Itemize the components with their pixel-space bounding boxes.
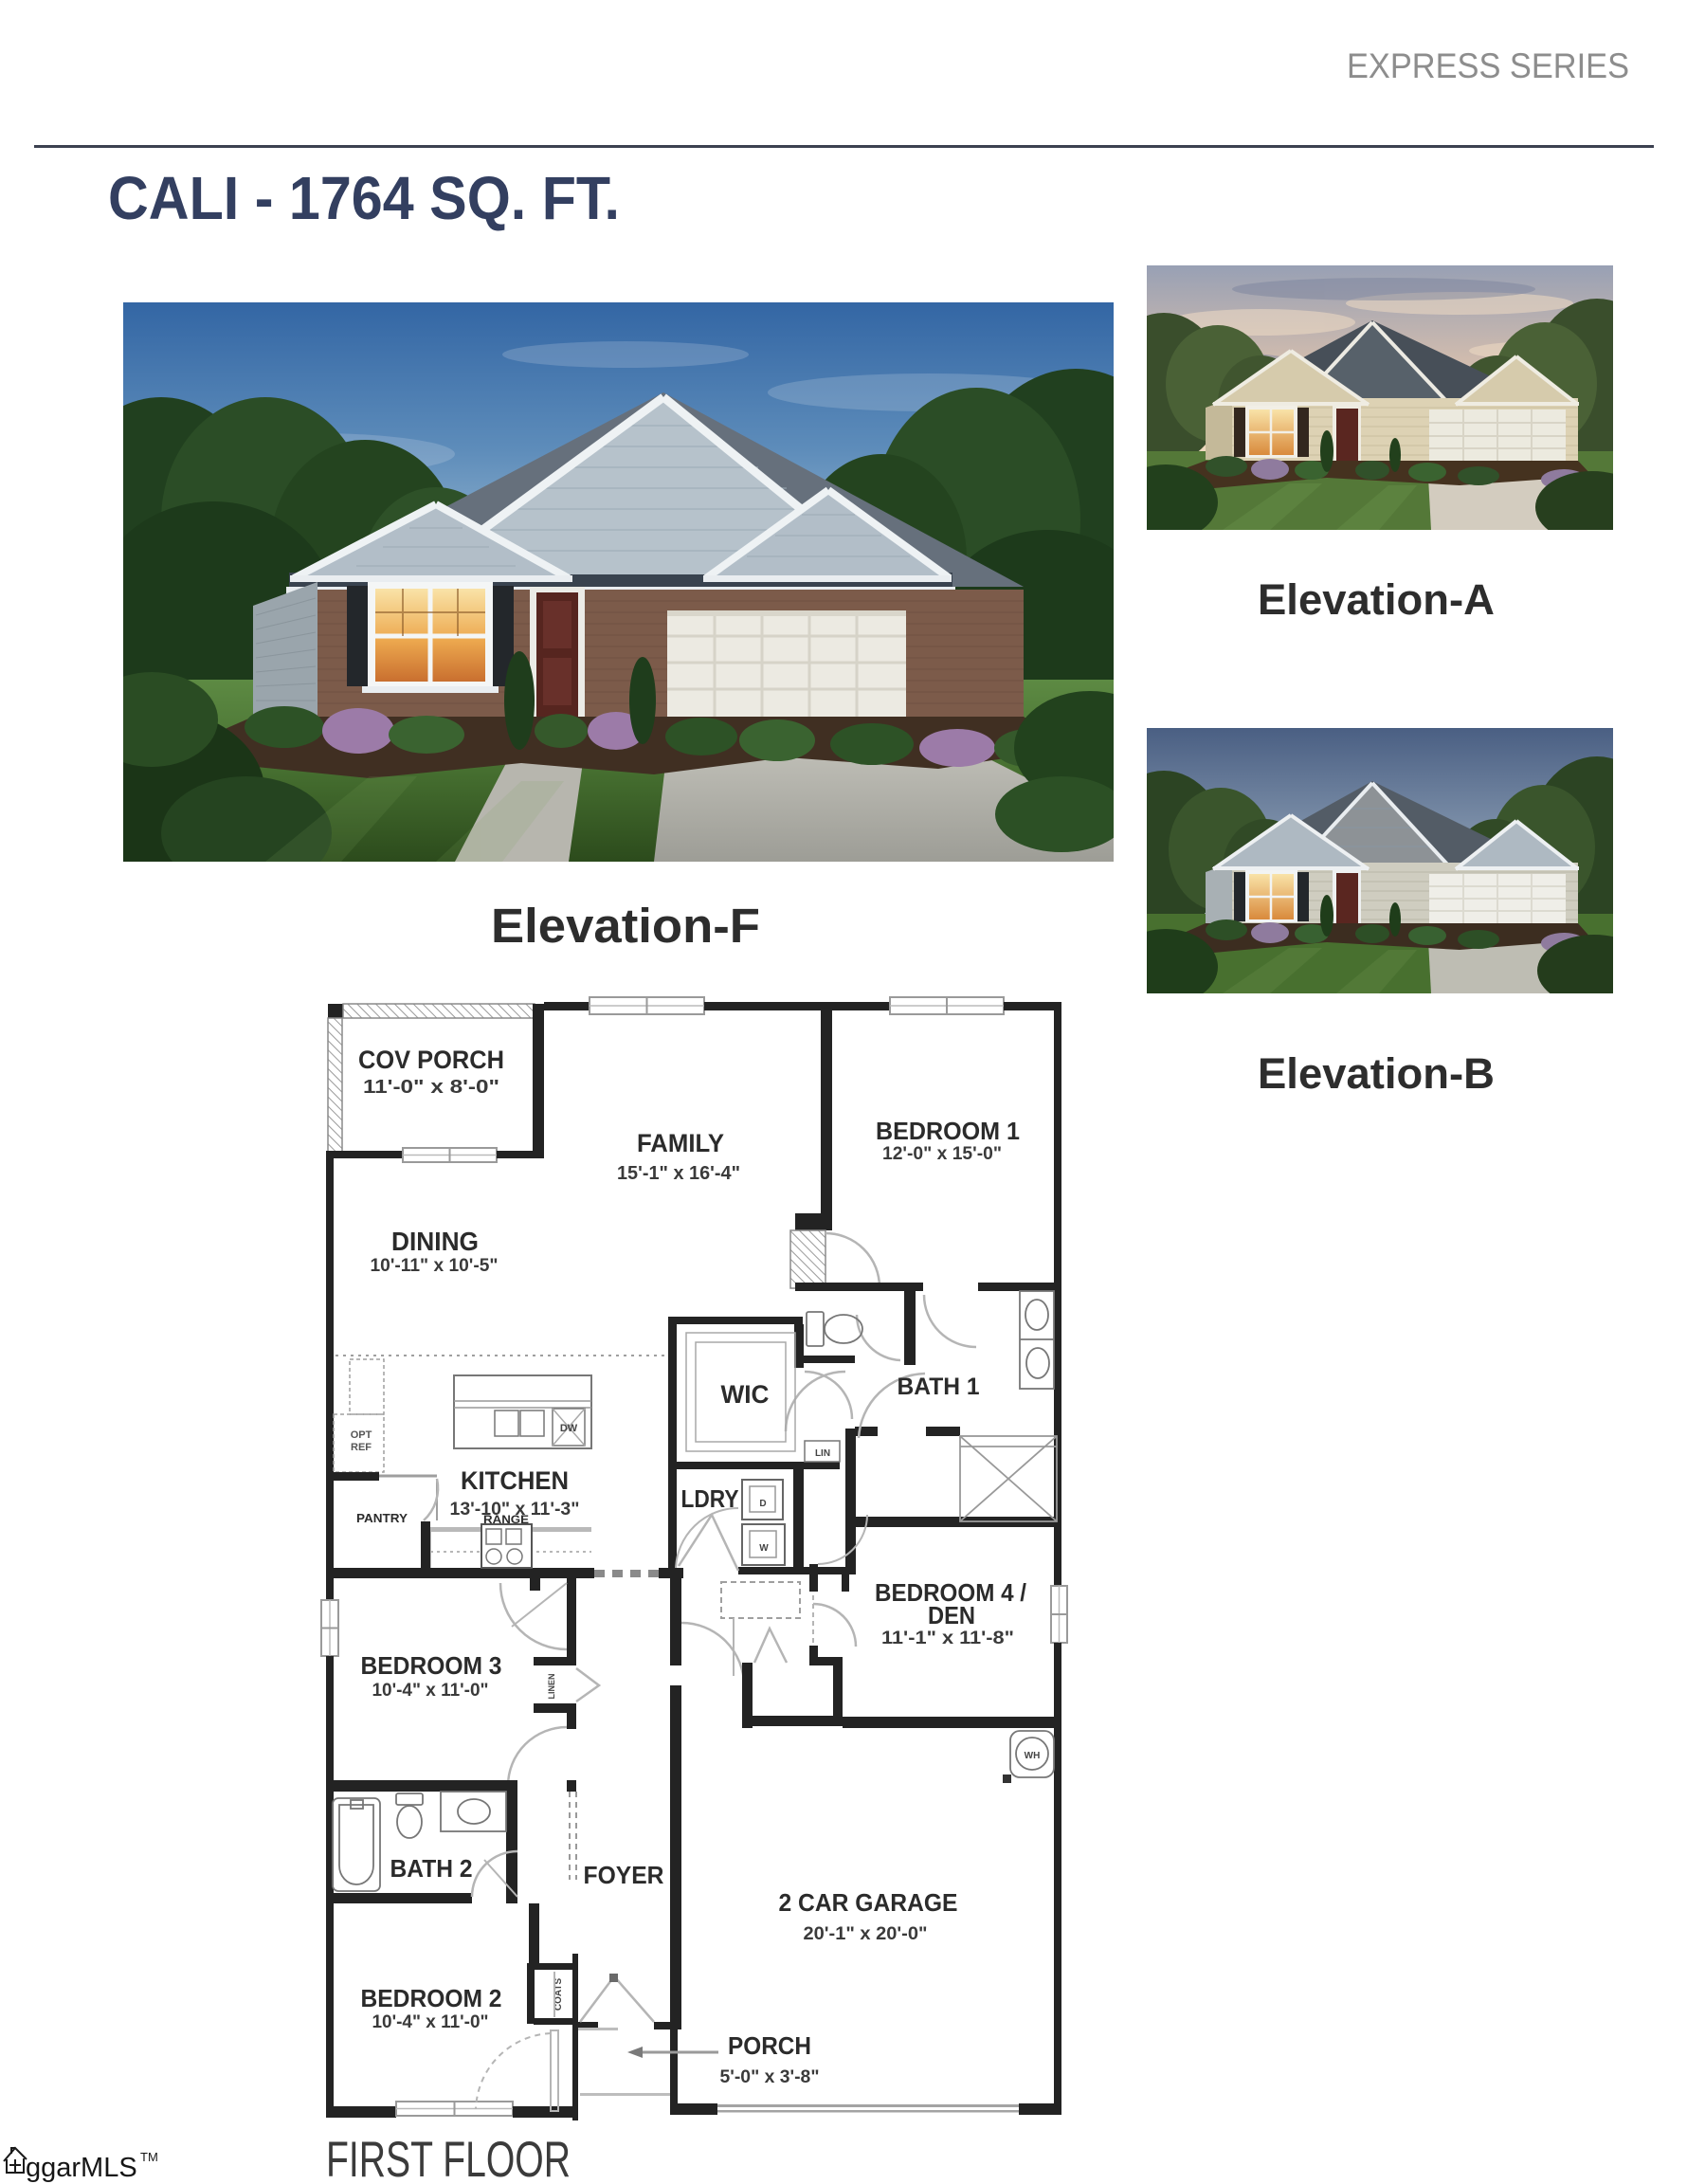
svg-text:COV PORCH: COV PORCH — [358, 1046, 504, 1074]
svg-text:15'-1" x 16'-4": 15'-1" x 16'-4" — [617, 1163, 740, 1184]
svg-text:TM: TM — [140, 2150, 158, 2164]
svg-text:BATH 1: BATH 1 — [898, 1374, 980, 1400]
svg-text:5'-0" x 3'-8": 5'-0" x 3'-8" — [720, 2067, 820, 2087]
svg-text:13'-10" x 11'-3": 13'-10" x 11'-3" — [450, 1500, 580, 1520]
svg-text:20'-1" x 20'-0": 20'-1" x 20'-0" — [804, 1924, 928, 1944]
svg-text:PANTRY: PANTRY — [356, 1511, 408, 1525]
svg-text:D: D — [759, 1499, 766, 1509]
svg-text:PORCH: PORCH — [728, 2031, 811, 2060]
svg-text:BEDROOM 2: BEDROOM 2 — [361, 1984, 502, 2012]
svg-text:10'-11" x 10'-5": 10'-11" x 10'-5" — [371, 1256, 499, 1276]
svg-text:CALI - 1764 SQ. FT.: CALI - 1764 SQ. FT. — [108, 164, 620, 232]
svg-text:2 CAR GARAGE: 2 CAR GARAGE — [779, 1888, 958, 1917]
svg-text:WH: WH — [1025, 1751, 1041, 1761]
svg-text:W: W — [759, 1543, 769, 1554]
svg-text:DEN: DEN — [928, 1601, 975, 1629]
svg-text:BATH 2: BATH 2 — [390, 1854, 473, 1883]
svg-text:Elevation-F: Elevation-F — [491, 899, 760, 953]
svg-text:10'-4" x 11'-0": 10'-4" x 11'-0" — [372, 2012, 489, 2032]
svg-text:LIN: LIN — [815, 1448, 830, 1459]
svg-text:REF: REF — [351, 1442, 372, 1453]
svg-text:DINING: DINING — [391, 1227, 479, 1256]
svg-text:FAMILY: FAMILY — [637, 1129, 724, 1157]
svg-text:11'-0" x 8'-0": 11'-0" x 8'-0" — [363, 1077, 499, 1098]
svg-text:EXPRESS SERIES: EXPRESS SERIES — [1347, 46, 1629, 85]
svg-text:Elevation-A: Elevation-A — [1258, 575, 1495, 624]
svg-text:BEDROOM 1: BEDROOM 1 — [876, 1117, 1020, 1145]
svg-text:FOYER: FOYER — [584, 1861, 664, 1889]
svg-text:LDRY: LDRY — [681, 1484, 739, 1513]
svg-text:10'-4" x 11'-0": 10'-4" x 11'-0" — [372, 1681, 489, 1701]
svg-text:BEDROOM 3: BEDROOM 3 — [361, 1651, 502, 1680]
svg-text:KITCHEN: KITCHEN — [461, 1466, 569, 1495]
svg-text:12'-0" x 15'-0": 12'-0" x 15'-0" — [882, 1144, 1002, 1164]
svg-text:OPT: OPT — [351, 1429, 372, 1441]
svg-text:WIC: WIC — [721, 1380, 770, 1409]
svg-text:11'-1" x 11'-8": 11'-1" x 11'-8" — [881, 1629, 1014, 1648]
svg-text:FIRST FLOOR: FIRST FLOOR — [326, 2132, 571, 2184]
svg-text:DW: DW — [560, 1423, 578, 1434]
svg-text:LINEN: LINEN — [547, 1674, 556, 1700]
svg-text:ggarMLS: ggarMLS — [26, 2153, 137, 2183]
svg-text:Elevation-B: Elevation-B — [1258, 1049, 1495, 1098]
